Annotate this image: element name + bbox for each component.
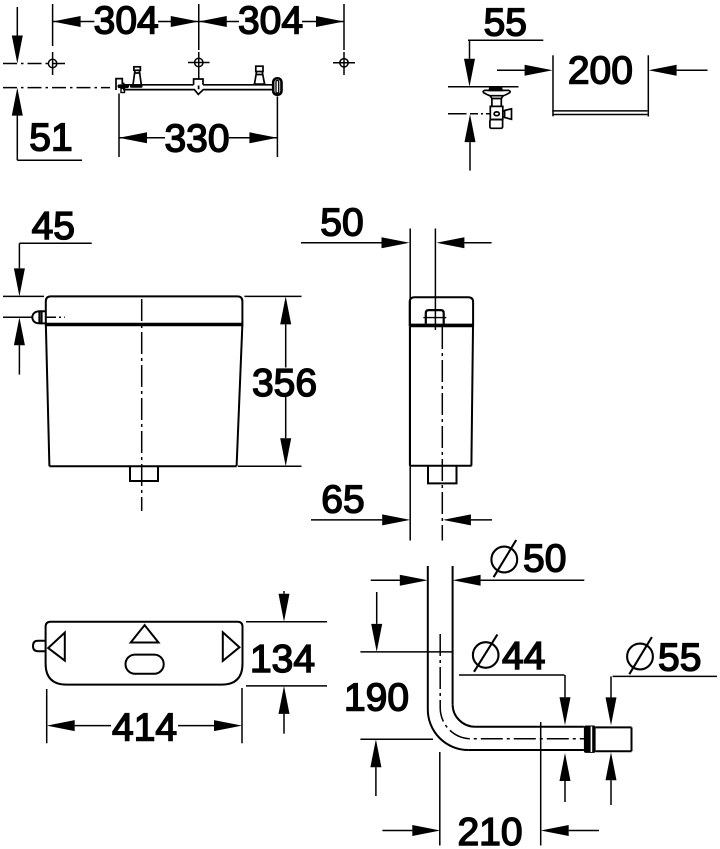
svg-text:414: 414 (112, 706, 177, 749)
svg-text:200: 200 (568, 50, 633, 93)
svg-text:55: 55 (484, 2, 527, 45)
svg-text:304: 304 (94, 0, 159, 43)
svg-text:44: 44 (502, 635, 545, 678)
svg-text:304: 304 (238, 0, 303, 43)
svg-text:330: 330 (164, 117, 229, 160)
svg-text:65: 65 (321, 479, 364, 522)
svg-text:356: 356 (252, 362, 317, 405)
svg-text:134: 134 (250, 638, 315, 681)
svg-text:50: 50 (523, 538, 566, 581)
svg-text:45: 45 (32, 205, 75, 248)
svg-text:55: 55 (658, 637, 701, 680)
svg-text:50: 50 (320, 202, 363, 245)
svg-text:51: 51 (29, 117, 72, 160)
svg-text:210: 210 (457, 811, 522, 849)
svg-text:190: 190 (344, 676, 409, 719)
